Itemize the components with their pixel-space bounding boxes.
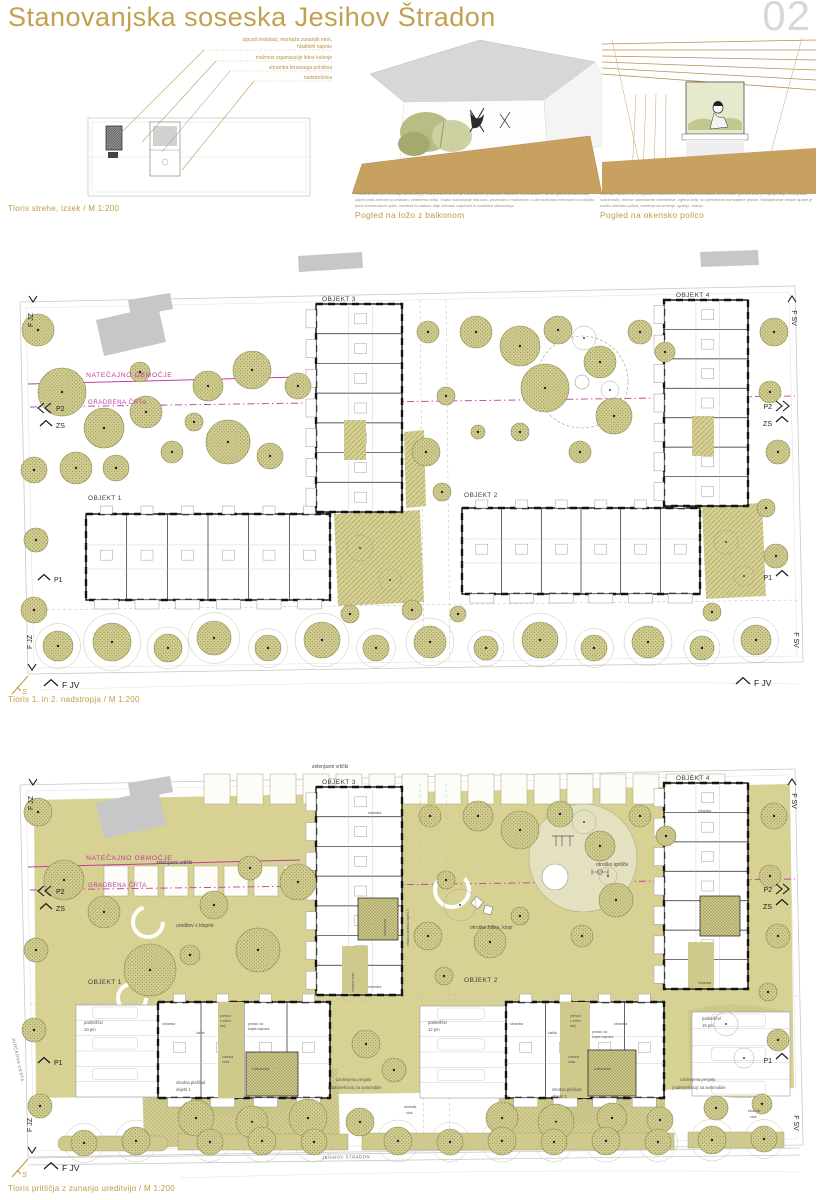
label-storage: shramba (698, 809, 711, 813)
circle-shape (33, 469, 35, 471)
rect-shape (600, 774, 626, 804)
site-plan-ground-floor: F JZP2ZSP1F JZSF JVF SVP2ZSP1F SV NATEČA… (0, 728, 819, 1188)
circle-shape (111, 641, 113, 643)
label-pergola: ozelenjena pergola (336, 1077, 372, 1082)
rect-shape (654, 306, 664, 324)
rect-shape (654, 965, 664, 983)
circle-shape (544, 387, 546, 389)
rect-shape (306, 912, 316, 930)
window-sill (682, 134, 748, 140)
tree-icon (341, 605, 359, 623)
circle-shape (429, 641, 431, 643)
label-lobby: veža (568, 1060, 575, 1064)
tree-icon (122, 1127, 150, 1155)
label-utility: trajne naprave (248, 1027, 270, 1031)
tree-icon (402, 600, 422, 620)
circle-shape (765, 507, 767, 509)
tree-icon (629, 805, 651, 827)
label-utility: prostor za (248, 1022, 263, 1026)
facade-marker-icon (44, 1163, 58, 1169)
circle-shape (149, 969, 151, 971)
line-shape (602, 62, 816, 70)
tree-icon (414, 626, 446, 658)
north-arrow-icon: S (12, 1159, 28, 1179)
rect-shape (306, 399, 316, 417)
circle-shape (269, 455, 271, 457)
circle-shape (349, 613, 351, 615)
circle-shape (611, 1117, 613, 1119)
circle-shape (519, 915, 521, 917)
circle-shape (429, 815, 431, 817)
label-eco-island: otok (406, 1111, 413, 1115)
rect-shape (176, 600, 200, 609)
edge-label: ZS (763, 421, 772, 428)
circle-shape (397, 1140, 399, 1142)
rect-shape (520, 994, 532, 1002)
circle-shape (459, 904, 461, 906)
label-pergola: (nadstrešnica) za avtomobile (672, 1085, 726, 1090)
rect-shape (654, 848, 664, 866)
rect-shape (306, 971, 316, 989)
label-objekt-2: OBJEKT 2 (464, 492, 498, 499)
circle-shape (35, 949, 37, 951)
tree-icon (632, 626, 664, 658)
tree-icon (703, 603, 721, 621)
roof-annotation: hladilnih naprav (297, 44, 333, 50)
circle-shape (375, 647, 377, 649)
rect-shape (654, 789, 664, 807)
label-passage: v zelen (220, 1019, 231, 1023)
circle-shape (559, 813, 561, 815)
div-shape: Posebna skrb pri snovanju stanovanj je b… (355, 191, 597, 220)
rect-shape (638, 994, 650, 1002)
rect-shape (654, 365, 664, 383)
rect-shape (483, 905, 493, 915)
label-storage: shramba (510, 1022, 523, 1026)
rect-shape (654, 482, 664, 500)
tree-icon (488, 1127, 516, 1155)
tree-icon (759, 865, 781, 887)
edge-label: S (22, 1170, 27, 1179)
tree-icon (501, 811, 539, 849)
rect-shape (358, 898, 398, 940)
tree-icon (645, 1129, 671, 1155)
label-playground: otroško igrišče (596, 862, 628, 868)
circle-shape (257, 949, 259, 951)
edge-label: F JV (754, 678, 772, 688)
label-parking: parkirišče/ (84, 1020, 104, 1025)
circle-shape (443, 975, 445, 977)
tree-icon (301, 1129, 327, 1155)
label-eco-island: ekološki (404, 1105, 416, 1109)
facade-marker-icon (40, 421, 52, 426)
label-objekt-2: OBJEKT 2 (464, 977, 498, 984)
objekt-1-building (86, 506, 330, 609)
circle-shape (639, 331, 641, 333)
circle-shape (583, 821, 585, 823)
circle-shape (519, 829, 521, 831)
tree-icon (571, 925, 593, 947)
tree-icon (463, 801, 493, 831)
circle-shape (227, 441, 229, 443)
loggia-perspective-sketch (352, 36, 602, 194)
tree-icon (511, 907, 529, 925)
circle-shape (773, 815, 775, 817)
tree-icon (24, 938, 48, 962)
label-storage: shramba (162, 1022, 175, 1026)
roof-annotation: shramba terasnega pohištva (269, 65, 332, 71)
tree-icon (741, 625, 771, 655)
circle-shape (579, 451, 581, 453)
tree-icon (599, 883, 633, 917)
greenery (432, 120, 472, 152)
window-description: Okenske špalete so poligonalno zasnovane… (600, 191, 816, 208)
rect-shape (217, 994, 229, 1002)
circle-shape (659, 1119, 661, 1121)
direction-chevron-icon (28, 664, 36, 670)
circle-shape (519, 345, 521, 347)
rect-shape (654, 877, 664, 895)
rect-shape (632, 1098, 656, 1107)
circle-shape (769, 391, 771, 393)
label-lobby: vhodna (222, 1055, 233, 1059)
direction-chevron-icon (29, 779, 37, 785)
tree-icon (197, 621, 231, 655)
circle-shape (725, 1023, 727, 1025)
tree-icon (382, 1058, 406, 1082)
tree-icon (544, 316, 572, 344)
circle-shape (209, 1141, 211, 1143)
roof-plan-outline (88, 118, 310, 196)
tree-icon (471, 425, 485, 439)
circle-shape (35, 539, 37, 541)
rect-shape (106, 126, 122, 150)
circle-shape (189, 954, 191, 956)
tree-icon (581, 635, 607, 661)
label-entrance-plaza: vhodna ploščad objekt 3 (406, 909, 410, 946)
label-gradbena-crta: GRADBENA ČRTA (88, 882, 147, 889)
circle-shape (37, 811, 39, 813)
tree-icon (257, 443, 283, 469)
line-shape (770, 38, 802, 156)
rect-shape (654, 936, 664, 954)
circle-shape (639, 815, 641, 817)
label-entrance-plaza: vhodna ploščad (176, 1080, 206, 1085)
polygon-shape (334, 510, 424, 606)
line-shape (182, 81, 254, 170)
rect-shape (254, 1098, 278, 1107)
rect-shape (468, 774, 494, 804)
circle-shape (427, 331, 429, 333)
tree-icon (24, 528, 48, 552)
label-passage: prehod (570, 1014, 581, 1018)
tree-icon (500, 326, 540, 366)
polygon-shape (700, 250, 759, 267)
circle-shape (297, 881, 299, 883)
tree-icon (414, 922, 442, 950)
path-shape (40, 682, 800, 690)
rect-shape (153, 126, 177, 146)
circle-shape (75, 467, 77, 469)
circle-shape (115, 467, 117, 469)
circle-shape (251, 369, 253, 371)
rect-shape (204, 774, 230, 804)
circle-shape (755, 639, 757, 641)
edge-label: F JV (62, 680, 80, 690)
circle-shape (135, 1140, 137, 1142)
label-passage: atrij (220, 1024, 226, 1028)
window-heading: Pogled na okensko polico (600, 210, 816, 220)
loggia-heading: Pogled na ložo z balkonom (355, 210, 597, 220)
rect-shape (344, 420, 366, 460)
label-objekt-4: OBJEKT 4 (676, 292, 710, 299)
circle-shape (575, 375, 589, 389)
circle-shape (609, 389, 611, 391)
circle-shape (743, 1057, 745, 1059)
label-garden-plots: zelenjavni vrtički (312, 764, 348, 770)
label-street-jurckova: JURČKOVA CESTA (11, 1037, 25, 1082)
tree-icon (248, 1127, 276, 1155)
site-plan-upper-floors: F JZP2ZSP1F JZSF JVF JVF SVP2ZSP1F SV NA… (0, 245, 819, 705)
roof-annotation: možnost organizacije letne kuhinje (256, 55, 333, 61)
tree-icon (433, 483, 451, 501)
label-lobby: vhodna (568, 1055, 579, 1059)
tree-icon (474, 636, 498, 660)
tree-icon (751, 1126, 777, 1152)
label-passage: v zelen (570, 1019, 581, 1023)
label-utility: prostor za (592, 1030, 607, 1034)
direction-chevron-icon (28, 1147, 36, 1153)
polygon-shape (298, 252, 363, 272)
circle-shape (207, 385, 209, 387)
facade-marker-icon (776, 417, 788, 422)
tree-icon (206, 420, 250, 464)
edge-label: P1 (54, 1060, 63, 1067)
circle-shape (777, 451, 779, 453)
label-cleaning: čistila (196, 1031, 205, 1035)
tree-icon (655, 342, 675, 362)
rect-shape (514, 1098, 538, 1107)
circle-shape (475, 331, 477, 333)
circle-shape (145, 411, 147, 413)
label-passage: prehod (220, 1014, 231, 1018)
label-objekt-1: OBJEKT 1 (88, 495, 122, 502)
circle-shape (581, 935, 583, 937)
label-gradbena-crta: GRADBENA ČRTA (88, 399, 147, 406)
label-utility: trajne naprave (592, 1035, 614, 1039)
circle-shape (267, 647, 269, 649)
rect-shape (306, 793, 316, 811)
label-bike-room: kolesarnica (594, 1067, 611, 1071)
label-natecajno-obmocje: NATEČAJNO OBMOČJE (86, 370, 172, 379)
label-objekt-3: OBJEKT 3 (322, 296, 356, 303)
label-entrance-plaza: vhodna ploščad (552, 1087, 582, 1092)
rect-shape (629, 594, 653, 603)
rect-shape (94, 600, 118, 609)
tree-icon (437, 1129, 463, 1155)
circle-shape (777, 1039, 779, 1041)
circle-shape (519, 431, 521, 433)
tree-icon (628, 320, 652, 344)
label-pergola: (nadstrešnica) za avtomobile (328, 1085, 382, 1090)
label-pergola: ozelenjena pergola (680, 1077, 716, 1082)
tree-icon (280, 864, 316, 900)
circle-shape (607, 875, 609, 877)
line-shape (120, 50, 204, 134)
rect-shape (654, 423, 664, 441)
rect-shape (555, 500, 567, 508)
garden-plots (104, 866, 308, 896)
circle-shape (389, 579, 391, 581)
circle-shape (763, 1138, 765, 1140)
rect-shape (654, 453, 664, 471)
circle-shape (307, 1117, 309, 1119)
tree-icon (759, 983, 777, 1001)
edge-label: F SV (792, 632, 799, 648)
tree-icon (766, 440, 790, 464)
label-benches: ureditev s klopmi (176, 923, 214, 929)
circle-shape (365, 1043, 367, 1045)
tree-icon (384, 1127, 412, 1155)
label-parking-count: 12 pm (428, 1027, 440, 1032)
circle-shape (213, 637, 215, 639)
circle-shape (539, 639, 541, 641)
rect-shape (246, 1052, 298, 1096)
sandpit (542, 864, 568, 890)
circle-shape (37, 329, 39, 331)
circle-shape (359, 1121, 361, 1123)
label-parking-count: 15 pm (702, 1023, 714, 1028)
tree-icon (690, 636, 714, 660)
circle-shape (769, 875, 771, 877)
circle-shape (583, 337, 585, 339)
circle-shape (477, 431, 479, 433)
edge-label: F JV (62, 1163, 80, 1173)
tree-icon (103, 455, 129, 481)
tree-icon (450, 606, 466, 622)
roof-plan-sketch: izpusti instalacij, montaža zunanjih eno… (0, 28, 340, 214)
circle-shape (701, 647, 703, 649)
circle-shape (61, 391, 63, 393)
label-storage: shramba (368, 811, 381, 815)
circle-shape (213, 904, 215, 906)
circle-shape (441, 491, 443, 493)
tree-icon (22, 1018, 46, 1042)
roof-annotation: nadstrešnica (304, 75, 333, 81)
tree-icon (412, 438, 440, 466)
tree-icon (238, 856, 262, 880)
circle-shape (63, 879, 65, 881)
circle-shape (39, 1105, 41, 1107)
rect-shape (559, 994, 571, 1002)
circle-shape (445, 879, 447, 881)
edge-label: P2 (763, 887, 772, 894)
path-shape (180, 1171, 800, 1178)
circle-shape (313, 1141, 315, 1143)
tree-icon (547, 801, 573, 827)
edge-label: F JZ (28, 312, 35, 327)
facade-marker-icon (44, 680, 58, 686)
rect-shape (549, 594, 573, 603)
line-shape (602, 56, 816, 60)
tree-icon (93, 623, 131, 661)
circle-shape (657, 1141, 659, 1143)
label-lobby: vhodna veža (351, 973, 355, 992)
rect-shape (516, 500, 528, 508)
circle-shape (485, 647, 487, 649)
edge-label: P2 (763, 404, 772, 411)
tree-icon (255, 635, 281, 661)
tree-icon (761, 803, 787, 829)
tree-icon (759, 381, 781, 403)
label-objekt-1: OBJEKT 1 (88, 979, 122, 986)
tree-icon (285, 373, 311, 399)
tree-icon (124, 944, 176, 996)
rect-shape (588, 1050, 636, 1096)
circle-shape (665, 835, 667, 837)
circle-shape (725, 541, 727, 543)
circle-shape (477, 815, 479, 817)
rect-shape (306, 823, 316, 841)
label-parking-count: 10 pm (84, 1027, 96, 1032)
rect-shape (263, 506, 275, 514)
label-street-jesihov: JESIHOV ŠTRADON (322, 1154, 370, 1160)
circle-shape (557, 329, 559, 331)
edge-label: P1 (763, 1058, 772, 1065)
tree-icon (200, 891, 228, 919)
circle-shape (83, 1142, 85, 1144)
tree-icon (437, 871, 455, 889)
rect-shape (501, 774, 527, 804)
circle-shape (261, 1140, 263, 1142)
tree-icon (154, 634, 182, 662)
planned-tree-icon (572, 326, 596, 350)
rect-shape (306, 340, 316, 358)
rect-shape (182, 506, 194, 514)
tree-icon (71, 1130, 97, 1156)
rect-shape (164, 866, 188, 896)
greenery (398, 132, 430, 156)
circle-shape (193, 421, 195, 423)
rect-shape (402, 774, 428, 804)
circle-shape (171, 451, 173, 453)
edge-label: F SV (790, 310, 797, 326)
circle-shape (743, 575, 745, 577)
tree-icon (511, 423, 529, 441)
tree-icon (304, 622, 340, 658)
circle-shape (599, 361, 601, 363)
circle-shape (715, 1107, 717, 1109)
upper-plan-caption: Tloris 1. in 2. nadstropja / M 1:200 (8, 695, 140, 704)
label-garden-plots: zelenjavni vrtički (156, 860, 192, 866)
circle-shape (249, 867, 251, 869)
edge-label: F SV (792, 1115, 799, 1131)
label-objekt-4: OBJEKT 4 (676, 775, 710, 782)
tree-icon (21, 597, 47, 623)
facade-marker-icon (38, 575, 50, 580)
edge-label: ZS (56, 906, 65, 913)
rect-shape (306, 941, 316, 959)
rect-shape (257, 600, 281, 609)
label-bike-room: kolesarnica (252, 1067, 269, 1071)
tree-icon (193, 371, 223, 401)
circle-shape (33, 609, 35, 611)
rect-shape (134, 866, 158, 896)
rect-shape (108, 152, 118, 158)
label-eco-island: otok (750, 1115, 757, 1119)
circle-shape (359, 547, 361, 549)
tree-icon (28, 1094, 52, 1118)
